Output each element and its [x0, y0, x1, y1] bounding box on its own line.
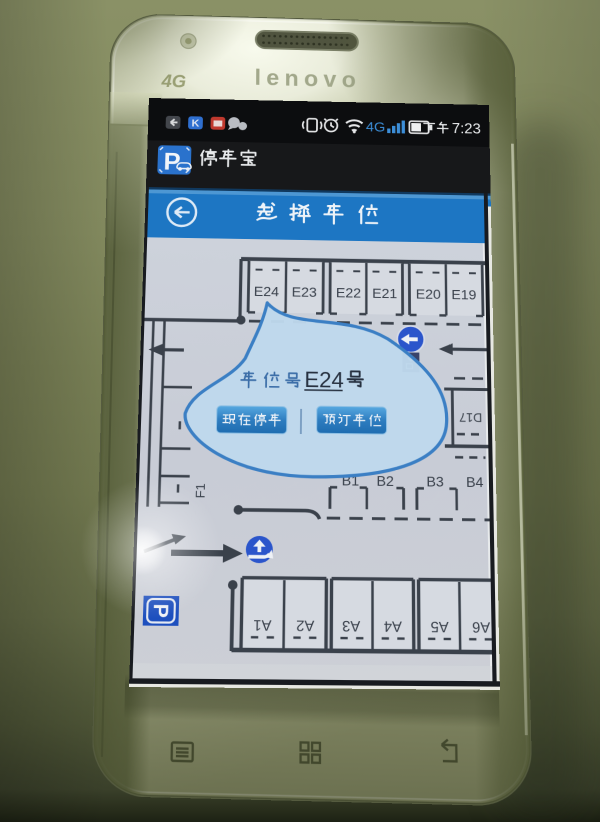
svg-text:E19: E19 [451, 287, 476, 303]
svg-text:D17: D17 [459, 410, 482, 424]
svg-text:E21: E21 [372, 285, 397, 301]
svg-text:A4: A4 [383, 618, 402, 635]
svg-text:P: P [149, 604, 173, 618]
svg-text:7:23: 7:23 [452, 121, 481, 137]
svg-text:E22: E22 [336, 285, 361, 301]
svg-text:E20: E20 [416, 286, 441, 302]
svg-text:B2: B2 [376, 473, 393, 490]
svg-text:B3: B3 [426, 473, 444, 489]
svg-text:E24: E24 [254, 284, 280, 300]
svg-text:E24: E24 [304, 368, 344, 393]
svg-text:B4: B4 [466, 474, 484, 490]
svg-text:F1: F1 [194, 483, 209, 498]
svg-text:A3: A3 [342, 618, 360, 635]
svg-text:P: P [163, 149, 181, 176]
svg-text:4G: 4G [366, 119, 385, 135]
svg-text:K: K [191, 119, 200, 130]
svg-text:A5: A5 [431, 618, 449, 635]
svg-text:A2: A2 [296, 617, 314, 634]
svg-text:A6: A6 [472, 619, 490, 636]
svg-text:E23: E23 [292, 284, 317, 300]
svg-text:A1: A1 [253, 617, 271, 634]
